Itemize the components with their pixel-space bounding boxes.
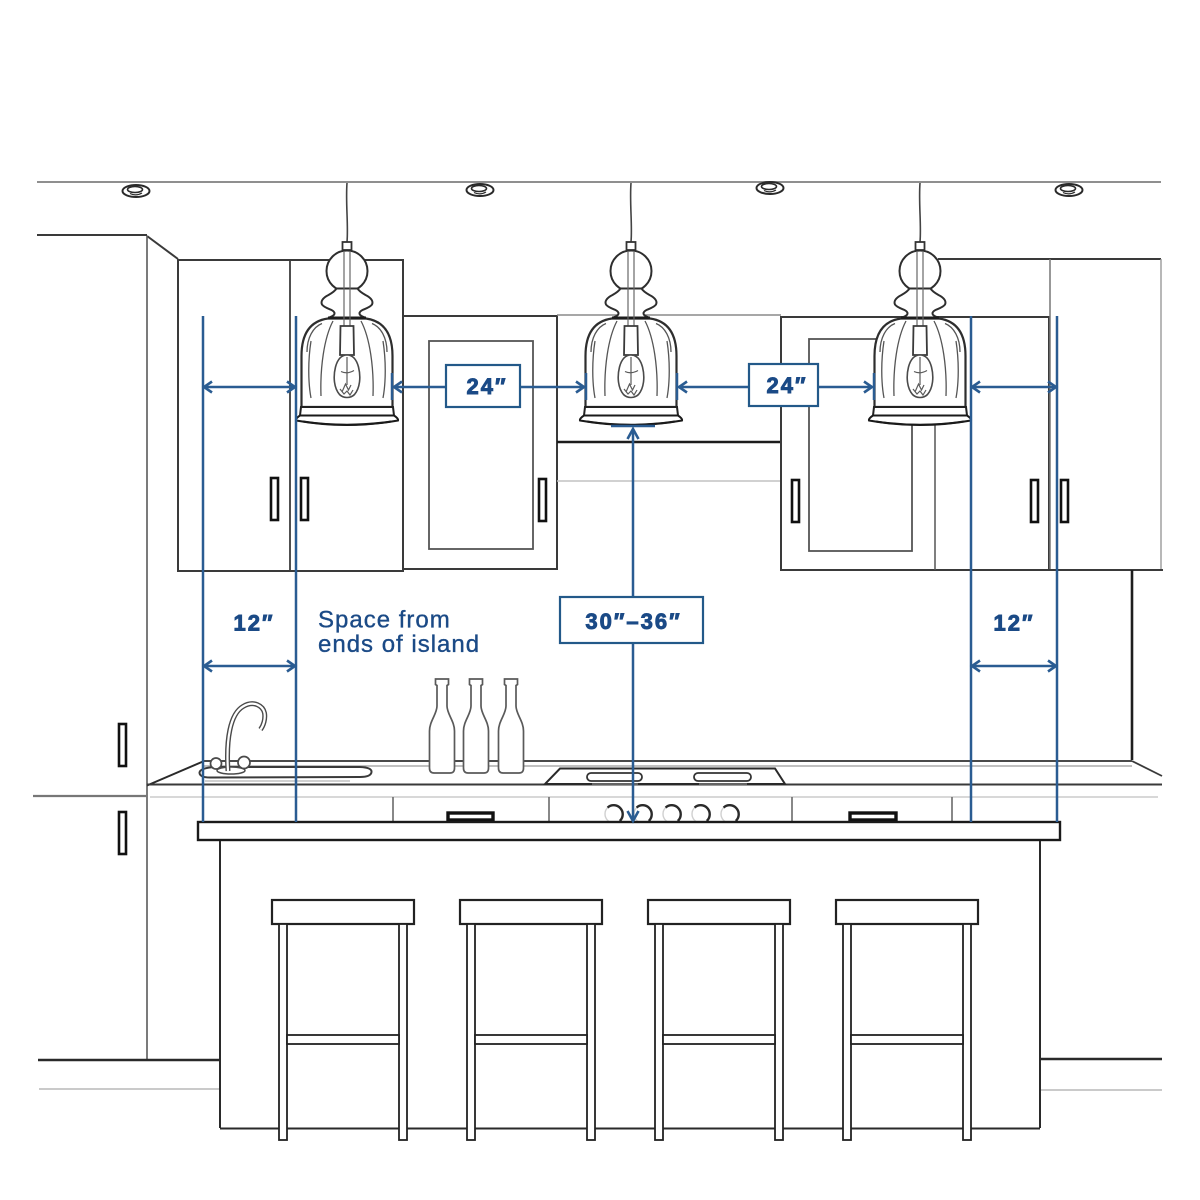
svg-text:24″: 24″ [466, 374, 507, 399]
svg-text:12″: 12″ [233, 611, 274, 636]
svg-text:ends of island: ends of island [318, 631, 480, 658]
svg-text:30″–36″: 30″–36″ [585, 609, 681, 634]
svg-text:24″: 24″ [766, 373, 807, 398]
svg-text:12″: 12″ [993, 611, 1034, 636]
svg-text:Space from: Space from [318, 607, 451, 634]
